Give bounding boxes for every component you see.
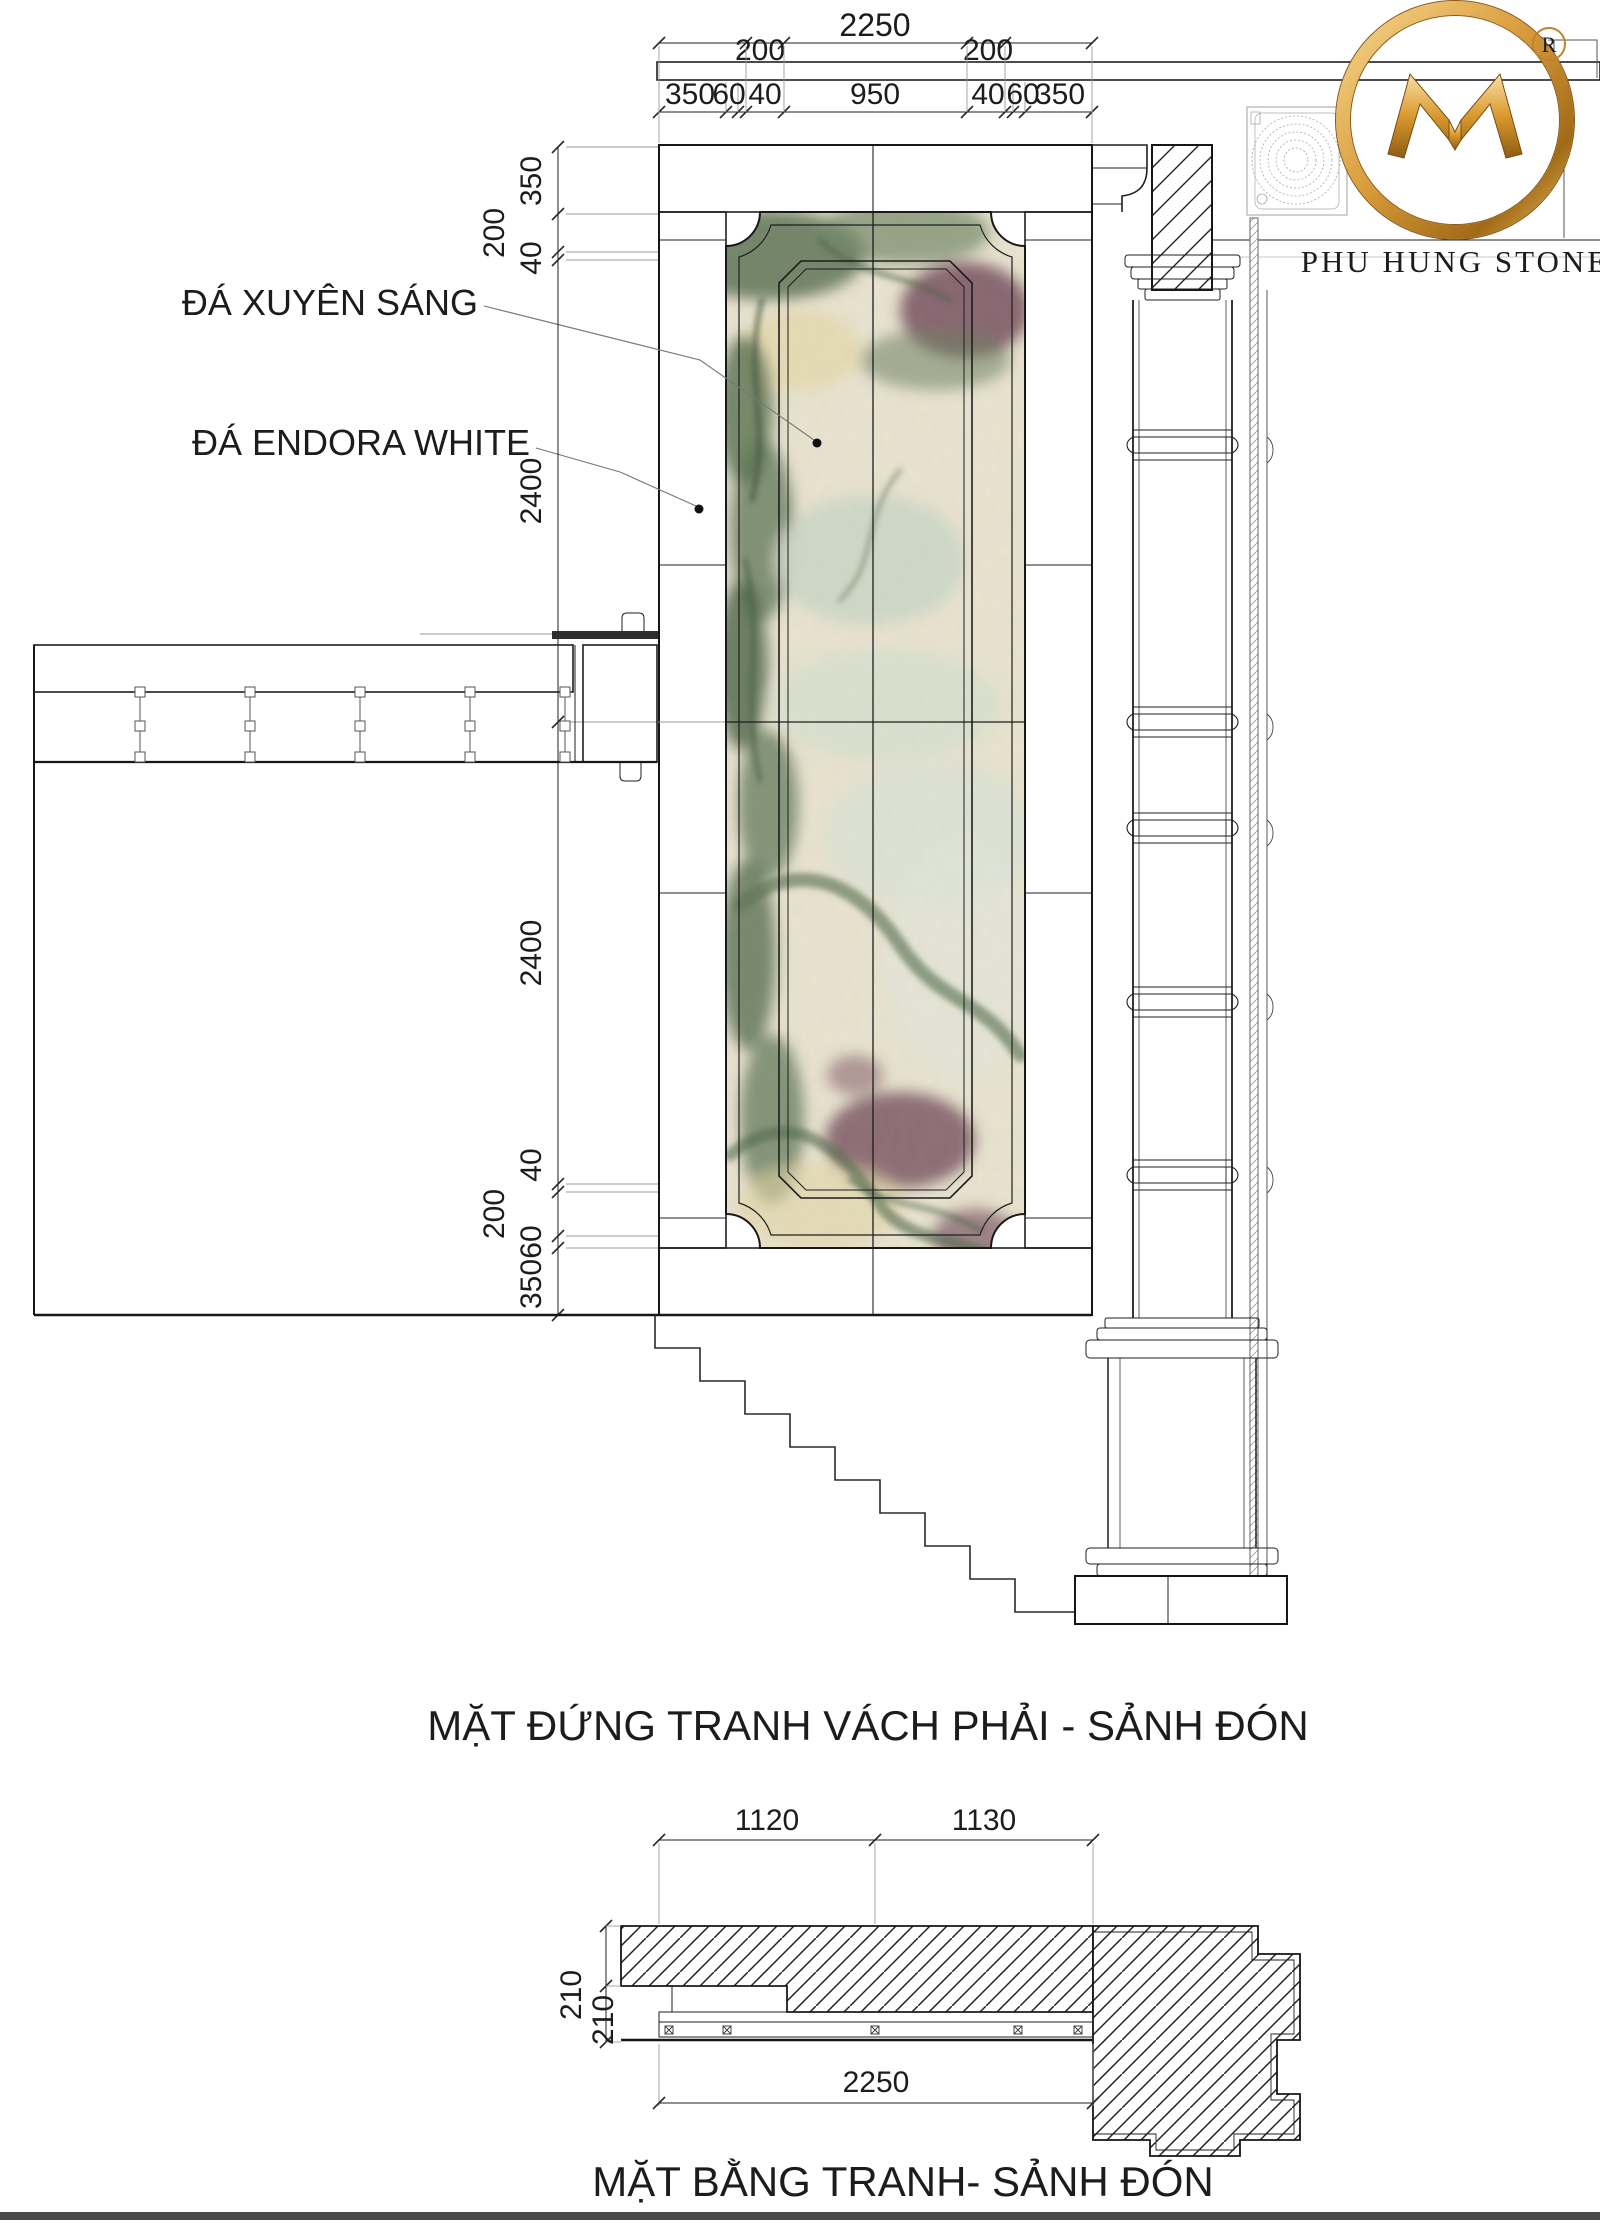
- dim-elev-overall: 2250 200 200: [653, 7, 1098, 67]
- plan-view: 1120 1130 210 210 2250: [555, 1804, 1300, 2156]
- track-strip: [1250, 218, 1258, 1622]
- dim-elev-left: 350 200 40 2400 2400 40 200 60 350: [478, 141, 725, 1321]
- pier-section: [1152, 145, 1212, 290]
- plan-backing-layer: [659, 2012, 1093, 2022]
- dim-chain-3: 40: [748, 78, 781, 111]
- plan-column-block: [1093, 1926, 1300, 2156]
- floor-slab-section: [34, 645, 573, 692]
- brand-name: PHU HUNG STONE: [1301, 244, 1600, 279]
- dim-plan-top: 1120 1130: [653, 1804, 1099, 1924]
- marble-panel: [675, 200, 1035, 1265]
- dim-chain-4: 950: [850, 78, 900, 111]
- dim-plan-bottom: 2250: [653, 2044, 1099, 2109]
- dim-plan-2250: 2250: [843, 2066, 910, 2099]
- stairs-profile: [655, 1315, 1172, 1612]
- drawing-sheet: 2250 200 200 350 60 40 950 40 60 350: [0, 0, 1600, 2225]
- dim-plan-210a: 210: [555, 1970, 588, 2020]
- dim-left-200t: 200: [478, 208, 511, 258]
- ceiling-slab-section: [657, 62, 1600, 80]
- dim-plan-1130: 1130: [952, 1804, 1017, 1837]
- ceiling-unit-sketch: [1247, 107, 1347, 215]
- back-wall-line: [1267, 290, 1273, 1600]
- dim-left-350b: 350: [515, 1259, 548, 1309]
- dim-left-40t: 40: [515, 241, 548, 274]
- right-column-assembly: [1075, 145, 1600, 1624]
- plan-wall-section: [621, 1926, 1093, 2012]
- label-endora-stone: ĐÁ ENDORA WHITE: [192, 422, 530, 463]
- leader-dot-translucent: [813, 439, 822, 448]
- dim-overall-width: 2250: [839, 7, 910, 43]
- dim-chain-2: 60: [712, 78, 745, 111]
- dim-chain-7: 350: [1035, 78, 1085, 111]
- elevation-title: MẶT ĐỨNG TRANH VÁCH PHẢI - SẢNH ĐÓN: [427, 1701, 1308, 1749]
- label-translucent-stone: ĐÁ XUYÊN SÁNG: [182, 282, 478, 323]
- dim-elev-top-chain: 350 60 40 950 40 60 350: [653, 46, 1098, 143]
- left-wall-section: [34, 613, 658, 1315]
- dim-left-40b: 40: [515, 1148, 548, 1181]
- plan-niche: [672, 1986, 787, 2012]
- bottom-edge-strip: [0, 2212, 1600, 2220]
- clip-above: [622, 613, 644, 631]
- dim-left-350t: 350: [515, 156, 548, 206]
- dim-left-60b: 60: [515, 1225, 548, 1258]
- column-shaft: [1127, 300, 1238, 1318]
- ceiling-hangers: [135, 687, 570, 762]
- dim-left-2400t: 2400: [515, 458, 548, 525]
- plan-title: MẶT BẰNG TRANH- SẢNH ĐÓN: [592, 2157, 1214, 2205]
- dim-chain-5: 40: [971, 78, 1004, 111]
- dim-plan-1120: 1120: [735, 1804, 800, 1837]
- plan-clips: [665, 2026, 1082, 2034]
- clip-below: [620, 762, 641, 781]
- mounting-rail: [552, 631, 658, 639]
- dim-plan-side: 210 210: [555, 1920, 621, 2048]
- dim-chain-1: 350: [665, 78, 715, 111]
- brand-logo: R PHU HUNG STONE: [1301, 1, 1600, 280]
- panel-crown-molding: [1092, 145, 1147, 212]
- wall-leg-section: [583, 645, 657, 762]
- logo-monogram: [1388, 74, 1522, 158]
- dim-left-2400b: 2400: [515, 920, 548, 987]
- dim-plan-210b: 210: [587, 1995, 620, 2045]
- dim-left-200b: 200: [478, 1189, 511, 1239]
- leader-dot-endora: [695, 505, 704, 514]
- registered-mark: R: [1542, 32, 1557, 57]
